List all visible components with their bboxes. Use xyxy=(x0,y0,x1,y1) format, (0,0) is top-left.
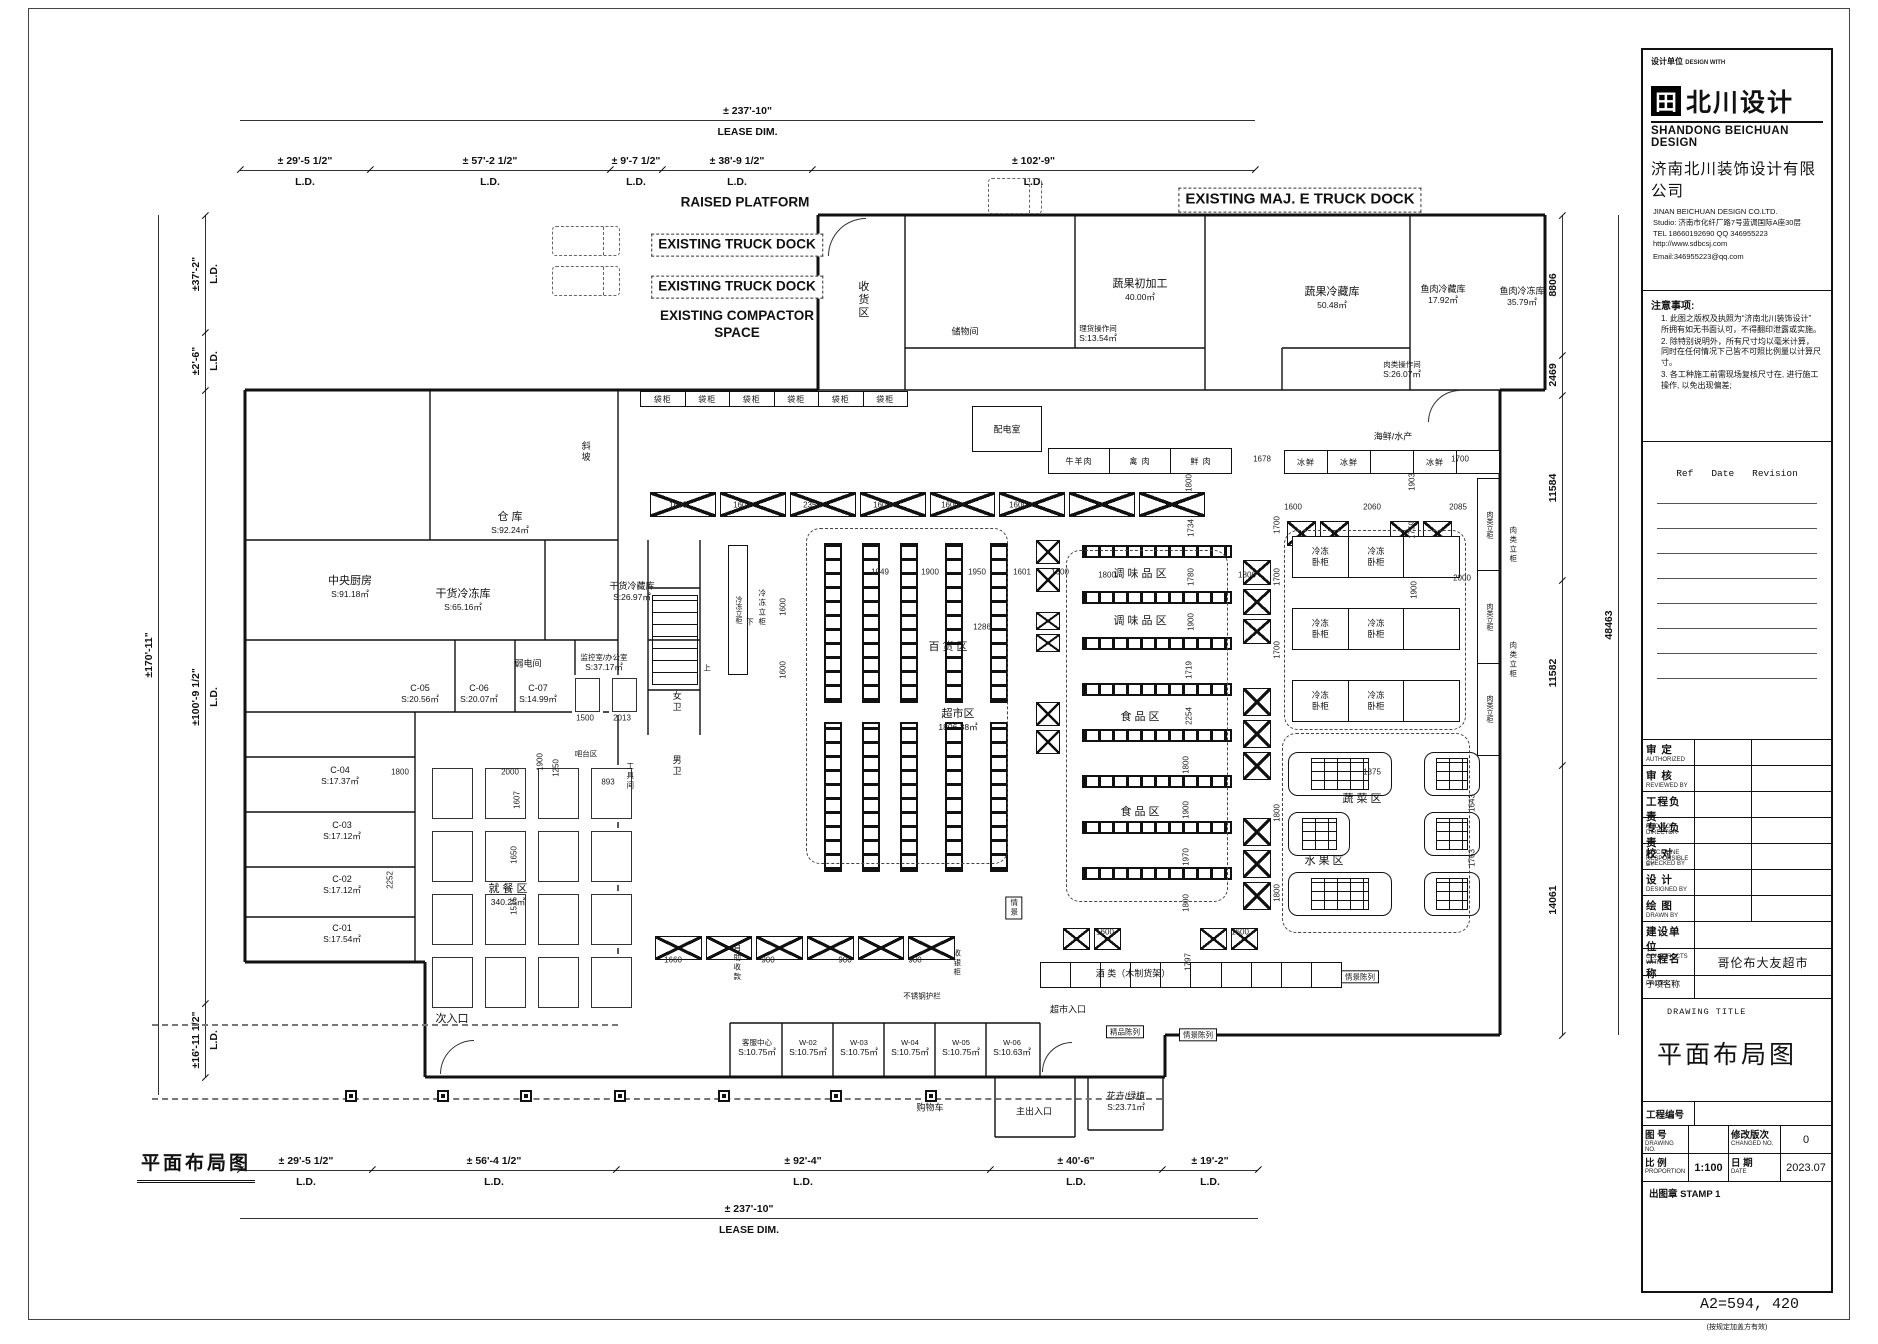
truck-icon xyxy=(552,226,620,256)
signoff-label-en: DESIGNED BY xyxy=(1646,887,1691,893)
dining-table xyxy=(575,678,600,712)
fixture-display-boxes xyxy=(1243,688,1271,780)
x-display-box xyxy=(1036,730,1060,754)
dimension-text: 1515 xyxy=(510,897,519,915)
stairs xyxy=(652,595,698,685)
signoff-cell-empty xyxy=(1695,870,1752,895)
project-name: 哥伦布大友超市 xyxy=(1695,949,1831,975)
signoff-row: 校 对CHECKED BY xyxy=(1643,844,1831,870)
dimension-text: 1286 xyxy=(973,623,991,632)
revision-empty-row xyxy=(1657,629,1817,654)
zone-boundary xyxy=(1066,550,1228,902)
company-name: 济南北川装饰设计有限公司 xyxy=(1651,157,1823,201)
x-display-box xyxy=(858,936,905,960)
column-marker xyxy=(520,1090,532,1102)
lease-dim-top xyxy=(240,120,1255,121)
dimension-text: 1600 xyxy=(1231,928,1249,937)
dimension-text: 1719 xyxy=(1185,661,1194,679)
column-marker xyxy=(925,1090,937,1102)
counter-cell xyxy=(1101,963,1131,987)
signoff-cell-empty xyxy=(1752,740,1831,765)
counter-cell: 袋柜 xyxy=(686,392,731,406)
fixture-display-boxes xyxy=(1036,702,1060,754)
dim-chain-sub: LEASE DIM. xyxy=(719,1224,779,1236)
dim-chain-label: ± 92'-4" xyxy=(784,1155,821,1167)
dimension-text: 2252 xyxy=(386,871,395,889)
dim-chain-sub: L.D. xyxy=(727,176,747,188)
signoff-label-cn: 审 核 xyxy=(1646,768,1691,783)
dimension-text: 1700 xyxy=(1273,641,1282,659)
dimension-text: 2085 xyxy=(1449,503,1467,512)
x-display-box xyxy=(1243,720,1271,748)
service-counter: 袋柜袋柜袋柜袋柜袋柜袋柜 xyxy=(640,391,908,407)
column-marker xyxy=(718,1090,730,1102)
dim-chain-label: 8806 xyxy=(1547,273,1559,296)
website: http://www.sdbcsj.com xyxy=(1653,239,1821,248)
signoff-row: 工程负责PROJECT DIRECTOR xyxy=(1643,792,1831,818)
dimension-text: 1643 xyxy=(1468,794,1477,812)
rev-no-value: 0 xyxy=(1781,1126,1831,1153)
fixture-display-boxes xyxy=(1243,818,1271,910)
note-item: 1. 此图之版权及执照为“济南北川装饰设计” 所拥有如无书面认可，不得翻印泄露或… xyxy=(1661,314,1821,336)
dimension-text: 1800 xyxy=(1182,894,1191,912)
dimension-text: 900 xyxy=(908,956,921,965)
counter-cell xyxy=(1191,963,1221,987)
dimension-text: 1949 xyxy=(871,568,889,577)
dim-chain-label: ± 38'-9 1/2" xyxy=(710,155,765,167)
signoff-cell-empty xyxy=(1695,844,1752,869)
dim-chain-label: ± 237'-10" xyxy=(725,1203,774,1215)
zone-boundary xyxy=(1282,733,1470,933)
dim-chain-sub: L.D. xyxy=(208,264,220,284)
revision-empty-row xyxy=(1657,529,1817,554)
note-item: 3. 各工种施工前需现场复核尺寸在, 进行施工操作, 以免出现偏差; xyxy=(1661,370,1821,392)
dimension-text: 1660 xyxy=(664,956,682,965)
dimension-text: 1600 xyxy=(779,598,788,616)
signoff-label-en: CHECKED BY xyxy=(1646,861,1691,867)
dining-table xyxy=(485,957,526,1008)
dim-chain-label: ± 57'-2 1/2" xyxy=(463,155,518,167)
dim-chain-sub: L.D. xyxy=(208,351,220,371)
dimension-text: 900 xyxy=(761,956,774,965)
x-display-box xyxy=(860,492,926,517)
x-display-box xyxy=(1063,928,1090,950)
x-display-box xyxy=(1139,492,1205,517)
revision-empty-row xyxy=(1657,579,1817,604)
dimension-text: 1250 xyxy=(552,759,561,777)
dining-table xyxy=(432,957,473,1008)
counter-cell xyxy=(1071,963,1101,987)
dimension-text: 2060 xyxy=(1363,503,1381,512)
counter-cell: 袋柜 xyxy=(641,392,686,406)
dim-chain-sub: L.D. xyxy=(295,176,315,188)
x-display-box xyxy=(1243,752,1271,780)
dim-chain-label: 48463 xyxy=(1603,610,1615,639)
dim-chain-label: ± 29'-5 1/2" xyxy=(279,1155,334,1167)
logo: 田 北川设计 xyxy=(1651,83,1823,119)
dimension-text: 1500 xyxy=(576,714,594,723)
x-display-box xyxy=(1243,850,1271,878)
scale-value: 1:100 xyxy=(1689,1154,1729,1181)
plan-title: 平面布局图 xyxy=(137,1148,255,1183)
signoff-cell-empty xyxy=(1752,818,1831,843)
x-display-box xyxy=(1036,634,1060,652)
dim-chain-right xyxy=(1562,215,1563,1035)
counter-cell xyxy=(1282,963,1312,987)
counter-cell: 袋柜 xyxy=(864,392,908,406)
client-value xyxy=(1695,922,1831,948)
counter-cell xyxy=(1041,963,1071,987)
dimension-text: 1800 xyxy=(1273,804,1282,822)
revision-col-header: Date xyxy=(1711,468,1734,479)
dimension-text: 1600 xyxy=(1284,503,1302,512)
dim-chain-label: 11582 xyxy=(1547,658,1559,687)
dim-chain-sub: L.D. xyxy=(793,1176,813,1188)
dim-chain-label: 11584 xyxy=(1547,473,1559,502)
stamp-validity: (按规定加盖方有效) xyxy=(1643,1322,1831,1332)
dimension-text: 1601 xyxy=(733,501,751,510)
service-counter: 牛羊肉禽 肉鲜 肉 xyxy=(1048,448,1232,474)
signoff-table: 审 定AUTHORIZED审 核REVIEWED BY工程负责PROJECT D… xyxy=(1643,740,1831,922)
dimension-text: 893 xyxy=(601,778,614,787)
stamp-label: 出图章 STAMP 1 xyxy=(1649,1186,1825,1200)
dim-chain-sub: L.D. xyxy=(626,176,646,188)
dim-chain-sub: L.D. xyxy=(296,1176,316,1188)
signoff-row: 绘 图DRAWN BY xyxy=(1643,896,1831,922)
dim-chain-right-outer xyxy=(1618,215,1619,1035)
notes-title: 注意事项: xyxy=(1651,297,1823,312)
wall-cabinet-column: 冷冻立柜 xyxy=(728,545,748,675)
dimension-text: 1600 xyxy=(1009,501,1027,510)
dim-chain-sub: L.D. xyxy=(208,687,220,707)
dining-tables xyxy=(432,768,632,1008)
dimension-text: 1903 xyxy=(1408,473,1417,491)
dimension-text: 1900 xyxy=(1182,801,1191,819)
signoff-label-cn: 校 对 xyxy=(1646,846,1691,861)
dimension-text: 1797 xyxy=(1184,953,1193,971)
dimension-text: 1700 xyxy=(1451,455,1469,464)
dim-chain-sub: L.D. xyxy=(208,1030,220,1050)
counter-cell xyxy=(1131,963,1161,987)
project-no-value xyxy=(1695,1102,1831,1125)
design-firm-section: 设计单位 DESIGN WITH 田 北川设计 SHANDONG BEICHUA… xyxy=(1643,56,1831,291)
dimension-text: 1759 xyxy=(1408,521,1417,539)
revision-empty-row xyxy=(1657,654,1817,679)
dimension-text: 900 xyxy=(838,956,851,965)
note-item: 2. 除特别说明外，所有尺寸均以毫米计算，同时在任何情况下己皆不可照比例量以计算… xyxy=(1661,337,1821,369)
dim-chain-sub: LEASE DIM. xyxy=(717,126,777,138)
zone-boundary xyxy=(1284,530,1466,730)
subitem-value xyxy=(1695,976,1831,998)
wall-cabinet-column: 肉类立柜肉类立柜肉类立柜 xyxy=(1477,478,1501,756)
dimension-text: 2254 xyxy=(1185,707,1194,725)
dining-table xyxy=(591,831,632,882)
dimension-text: 1600 xyxy=(779,661,788,679)
revision-col-header: Revision xyxy=(1752,468,1798,479)
signoff-row: 设 计DESIGNED BY xyxy=(1643,870,1831,896)
dim-chain-label: ± 102'-9" xyxy=(1012,155,1055,167)
signoff-cell-empty xyxy=(1752,896,1831,921)
signoff-cell-empty xyxy=(1695,740,1752,765)
company-name-en: JINAN BEICHUAN DESIGN CO.LTD. xyxy=(1653,207,1821,216)
dim-chain-label: ± 29'-5 1/2" xyxy=(278,155,333,167)
dimension-text: 1900 xyxy=(536,753,545,771)
dimension-text: 1601 xyxy=(1013,568,1031,577)
signoff-cell-empty xyxy=(1695,896,1752,921)
dimension-text: 1600 xyxy=(669,501,687,510)
fixture-display-boxes xyxy=(1036,612,1060,652)
x-display-box xyxy=(1243,688,1271,716)
dining-table xyxy=(485,894,526,945)
x-display-box xyxy=(1200,928,1227,950)
signoff-cell-empty xyxy=(1752,870,1831,895)
x-display-box xyxy=(1243,619,1271,644)
dimension-text: 1763 xyxy=(1468,849,1477,867)
project-row: 工程名称PROJECT 哥伦布大友超市 xyxy=(1643,949,1831,976)
signoff-label: 设 计DESIGNED BY xyxy=(1643,870,1695,895)
x-display-box xyxy=(720,492,786,517)
signoff-row: 审 核REVIEWED BY xyxy=(1643,766,1831,792)
wall-cabinet: 冷冻立柜 xyxy=(729,546,747,674)
signoff-label: 工程负责PROJECT DIRECTOR xyxy=(1643,792,1695,817)
dining-table xyxy=(432,894,473,945)
dimension-text: 1900 xyxy=(921,568,939,577)
stamp-section: 出图章 STAMP 1 (按规定加盖方有效) xyxy=(1643,1186,1831,1336)
tel-qq: TEL 18660192690 QQ 346955223 xyxy=(1653,229,1821,238)
dimension-text: 1700 xyxy=(1273,516,1282,534)
revision-lines xyxy=(1643,479,1831,679)
revision-empty-row xyxy=(1657,479,1817,504)
signoff-label: 审 核REVIEWED BY xyxy=(1643,766,1695,791)
dim-chain-label: ±2'-6" xyxy=(190,347,202,375)
drawing-title-head: DRAWING TITLE xyxy=(1667,1007,1831,1017)
revision-col-header: Ref xyxy=(1676,468,1693,479)
counter-cell xyxy=(1312,963,1341,987)
x-display-box xyxy=(1036,540,1060,564)
dimension-text: 1600 xyxy=(1096,928,1114,937)
signoff-label-cn: 设 计 xyxy=(1646,872,1691,887)
dim-chain-bottom xyxy=(240,1170,1258,1171)
signoff-label-cn: 审 定 xyxy=(1646,742,1691,757)
dining-table xyxy=(538,894,579,945)
dining-table xyxy=(538,957,579,1008)
column-marker xyxy=(437,1090,449,1102)
signoff-cell-empty xyxy=(1752,766,1831,791)
signoff-label: 审 定AUTHORIZED xyxy=(1643,740,1695,765)
drawing-title: 平面布局图 xyxy=(1657,1035,1831,1071)
studio-address: Studio: 济南市化纤厂路7号蓝调国际A座30层 xyxy=(1653,217,1821,228)
fixture-display-boxes xyxy=(1036,540,1060,592)
dimension-text: 1600 xyxy=(941,501,959,510)
signoff-label-en: AUTHORIZED xyxy=(1646,757,1691,763)
wall-cabinet: 肉类立柜 xyxy=(1478,571,1500,663)
signoff-label: 专业负责DISCIPLINE RESPONSIBLE BY xyxy=(1643,818,1695,843)
dim-chain-label: ± 40'-6" xyxy=(1057,1155,1094,1167)
dimension-text: 2000 xyxy=(1453,574,1471,583)
dining-table xyxy=(538,831,579,882)
signoff-cell-empty xyxy=(1695,766,1752,791)
dining-table xyxy=(432,831,473,882)
truck-icon xyxy=(988,178,1042,214)
signoff-label-cn: 绘 图 xyxy=(1646,898,1691,913)
x-display-box xyxy=(930,492,996,517)
signoff-cell-empty xyxy=(1752,792,1831,817)
signoff-label-en: DRAWN BY xyxy=(1646,913,1691,919)
dimension-text: 1600 xyxy=(1051,568,1069,577)
dining-table xyxy=(591,957,632,1008)
counter-cell xyxy=(1252,963,1282,987)
drawing-title-section: DRAWING TITLE 平面布局图 xyxy=(1643,1007,1831,1102)
drawing-sheet: ± 237'-10"LEASE DIM.± 29'-5 1/2"L.D.± 57… xyxy=(0,0,1878,1344)
drawing-no-value xyxy=(1689,1126,1729,1153)
counter-cell: 袋柜 xyxy=(775,392,820,406)
email: Email:346955223@qq.com xyxy=(1653,252,1821,261)
signoff-cell-empty xyxy=(1695,818,1752,843)
signoff-row: 审 定AUTHORIZED xyxy=(1643,740,1831,766)
counter-cell: 禽 肉 xyxy=(1110,449,1171,473)
revision-section: RefDateRevision xyxy=(1643,468,1831,740)
dimension-text: 1734 xyxy=(1187,519,1196,537)
dimension-text: 2000 xyxy=(501,768,519,777)
revision-empty-row xyxy=(1657,504,1817,529)
dim-chain-label: ± 237'-10" xyxy=(723,105,772,117)
dimension-text: 1900 xyxy=(1187,613,1196,631)
dining-tables xyxy=(575,678,637,712)
project-no-row: 工程编号 xyxy=(1643,1102,1831,1126)
revision-empty-row xyxy=(1657,554,1817,579)
dimension-text: 1800 xyxy=(1273,884,1282,902)
signoff-cell-empty xyxy=(1695,792,1752,817)
dimension-text: 1375 xyxy=(1363,768,1381,777)
counter-cell xyxy=(1222,963,1252,987)
zone-boundary xyxy=(806,528,1008,864)
dim-chain-label: ± 19'-2" xyxy=(1191,1155,1228,1167)
wall-cabinet: 肉类立柜 xyxy=(1478,664,1500,755)
fixture-display-boxes xyxy=(1200,928,1258,950)
signoff-label: 校 对CHECKED BY xyxy=(1643,844,1695,869)
x-display-box xyxy=(790,492,856,517)
x-display-box xyxy=(1243,818,1271,846)
dining-table xyxy=(591,894,632,945)
dining-table xyxy=(485,831,526,882)
dimension-text: 1780 xyxy=(1187,568,1196,586)
x-display-box xyxy=(1069,492,1135,517)
counter-cell: 冰鲜 xyxy=(1285,451,1328,473)
dimension-text: 1678 xyxy=(1253,455,1271,464)
wall-cabinet: 肉类立柜 xyxy=(1478,479,1500,571)
counter-cell: 鲜 肉 xyxy=(1171,449,1231,473)
scale-date-row: 比 例PROPORTION 1:100 日 期DATE 2023.07 xyxy=(1643,1154,1831,1182)
dimension-text: 1800 xyxy=(1185,474,1194,492)
x-display-box xyxy=(1036,612,1060,630)
dim-chain-label: ± 9'-7 1/2" xyxy=(612,155,661,167)
dining-table xyxy=(612,678,637,712)
road-marking xyxy=(152,1024,618,1026)
dimension-text: 1900 xyxy=(1410,581,1419,599)
dim-chain-label: 2469 xyxy=(1547,363,1559,386)
column-marker xyxy=(345,1090,357,1102)
dimension-text: 1800 xyxy=(1182,756,1191,774)
dining-table xyxy=(591,768,632,819)
x-display-box xyxy=(1243,589,1271,614)
counter-cell: 袋柜 xyxy=(819,392,864,406)
logo-text-en: SHANDONG BEICHUAN DESIGN xyxy=(1651,121,1823,149)
dimension-text: 2013 xyxy=(613,714,631,723)
dim-chain-sub: L.D. xyxy=(1200,1176,1220,1188)
dimension-text: 1950 xyxy=(968,568,986,577)
notes-list: 1. 此图之版权及执照为“济南北川装饰设计” 所拥有如无书面认可，不得翻印泄露或… xyxy=(1643,314,1831,392)
dim-chain-label: 14061 xyxy=(1547,885,1559,914)
dim-chain-label: ±100'-9 1/2" xyxy=(190,668,202,726)
dim-chain-label: ±16'-11 1/2" xyxy=(190,1011,202,1068)
date-value: 2023.07 xyxy=(1781,1154,1831,1181)
dimension-text: 1650 xyxy=(510,846,519,864)
counter-cell: 牛羊肉 xyxy=(1049,449,1110,473)
floor-plan: ± 237'-10"LEASE DIM.± 29'-5 1/2"L.D.± 57… xyxy=(0,0,1640,1344)
x-display-box xyxy=(706,936,753,960)
counter-cell: 袋柜 xyxy=(730,392,775,406)
dim-chain-left xyxy=(205,215,206,1077)
dimension-text: 1970 xyxy=(1182,848,1191,866)
revision-empty-row xyxy=(1657,604,1817,629)
column-marker xyxy=(830,1090,842,1102)
counter-cell xyxy=(1371,451,1414,473)
dim-chain-label: ±37'-2" xyxy=(190,256,202,290)
drawing-no-row: 图 号DRAWING NO. 修改版次CHANGED NO. 0 xyxy=(1643,1126,1831,1154)
dimension-text: 2350 xyxy=(803,501,821,510)
lease-dim-bottom xyxy=(240,1218,1258,1219)
dim-chain-left-outer xyxy=(158,215,159,1095)
logo-mark-icon: 田 xyxy=(1651,86,1681,116)
dining-table xyxy=(432,768,473,819)
revision-header: RefDateRevision xyxy=(1643,468,1831,479)
x-display-box xyxy=(1243,882,1271,910)
counter-cell: 冰鲜 xyxy=(1328,451,1371,473)
dim-chain-sub: L.D. xyxy=(1066,1176,1086,1188)
title-block: 设计单位 DESIGN WITH 田 北川设计 SHANDONG BEICHUA… xyxy=(1641,48,1833,1293)
dim-chain-sub: L.D. xyxy=(484,1176,504,1188)
dimension-text: 1800 xyxy=(391,768,409,777)
room-box xyxy=(972,406,1042,452)
dimension-text: 1800 xyxy=(1238,571,1256,580)
notes-section: 注意事项: 1. 此图之版权及执照为“济南北川装饰设计” 所拥有如无书面认可，不… xyxy=(1643,297,1831,442)
signoff-label: 绘 图DRAWN BY xyxy=(1643,896,1695,921)
dim-chain-label: ± 56'-4 1/2" xyxy=(467,1155,522,1167)
dim-chain-top xyxy=(240,170,1255,171)
dimension-text: 1800 xyxy=(1098,571,1116,580)
client-row: 建设单位CONSTRUCTS WITH xyxy=(1643,922,1831,949)
dimension-text: 1607 xyxy=(513,791,522,809)
dim-chain-sub: L.D. xyxy=(480,176,500,188)
dimension-text: 1600 xyxy=(873,501,891,510)
dim-chain-label: ±170'-11" xyxy=(143,632,155,677)
truck-icon xyxy=(552,266,620,296)
design-with-label: 设计单位 DESIGN WITH xyxy=(1651,56,1823,67)
signoff-row: 专业负责DISCIPLINE RESPONSIBLE BY xyxy=(1643,818,1831,844)
subitem-row: 子项名称 xyxy=(1643,976,1831,999)
x-display-box xyxy=(1036,702,1060,726)
logo-text-cn: 北川设计 xyxy=(1686,83,1794,119)
signoff-label-en: REVIEWED BY xyxy=(1646,783,1691,789)
signoff-cell-empty xyxy=(1752,844,1831,869)
dimension-text: 1700 xyxy=(1273,568,1282,586)
road-marking xyxy=(152,1098,1162,1100)
column-marker xyxy=(614,1090,626,1102)
